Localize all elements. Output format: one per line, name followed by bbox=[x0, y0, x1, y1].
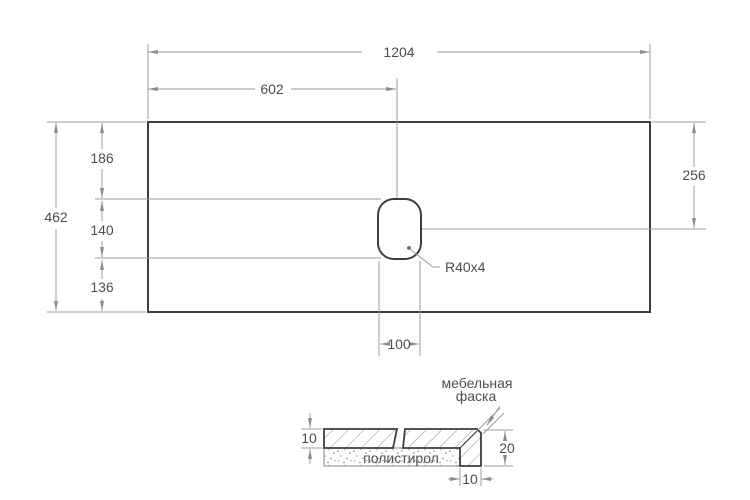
dim-bottom-segment: 136 bbox=[90, 260, 114, 311]
dim-value-20: 20 bbox=[499, 440, 515, 456]
chamfer-callout: мебельная фаска bbox=[442, 375, 513, 434]
drawing-page: 1204 602 462 186 140 bbox=[0, 0, 750, 500]
dim-middle-segment: 140 bbox=[90, 201, 114, 257]
leader-dot bbox=[407, 246, 411, 250]
filler-label: полистирол bbox=[363, 450, 439, 466]
dim-top-segment: 186 bbox=[90, 123, 114, 198]
dim-value-140: 140 bbox=[90, 222, 114, 238]
dim-value-10-bottom: 10 bbox=[462, 471, 478, 487]
dim-overall-width: 1204 bbox=[148, 44, 650, 60]
dim-center-offset: 602 bbox=[148, 81, 396, 97]
dim-value-100: 100 bbox=[387, 336, 411, 352]
technical-drawing: 1204 602 462 186 140 bbox=[0, 0, 750, 500]
dim-edge-width: 10 bbox=[448, 468, 493, 487]
dim-slab-thickness: 10 bbox=[301, 413, 322, 464]
dim-value-136: 136 bbox=[90, 279, 114, 295]
dim-overall-depth: 462 bbox=[44, 123, 68, 311]
section-view: полистирол мебельная фаска 10 20 bbox=[301, 375, 515, 487]
dim-value-256: 256 bbox=[682, 167, 706, 183]
dim-value-602: 602 bbox=[260, 81, 284, 97]
dim-value-10-top: 10 bbox=[301, 430, 317, 446]
dim-edge-height: 20 bbox=[484, 430, 515, 466]
chamfer-label-line2: фаска bbox=[456, 388, 497, 404]
section-top-slab-left bbox=[324, 429, 397, 448]
radius-value: R40x4 bbox=[445, 259, 486, 275]
chamfer-leader-arrow bbox=[487, 406, 500, 425]
dim-right-offset: 256 bbox=[682, 123, 706, 228]
dim-value-462: 462 bbox=[44, 209, 68, 225]
sink-cutout bbox=[378, 199, 421, 259]
dim-cutout-width: 100 bbox=[380, 336, 419, 352]
dim-value-1204: 1204 bbox=[383, 44, 414, 60]
dim-value-186: 186 bbox=[90, 150, 114, 166]
plan-view: 1204 602 462 186 140 bbox=[44, 44, 706, 356]
